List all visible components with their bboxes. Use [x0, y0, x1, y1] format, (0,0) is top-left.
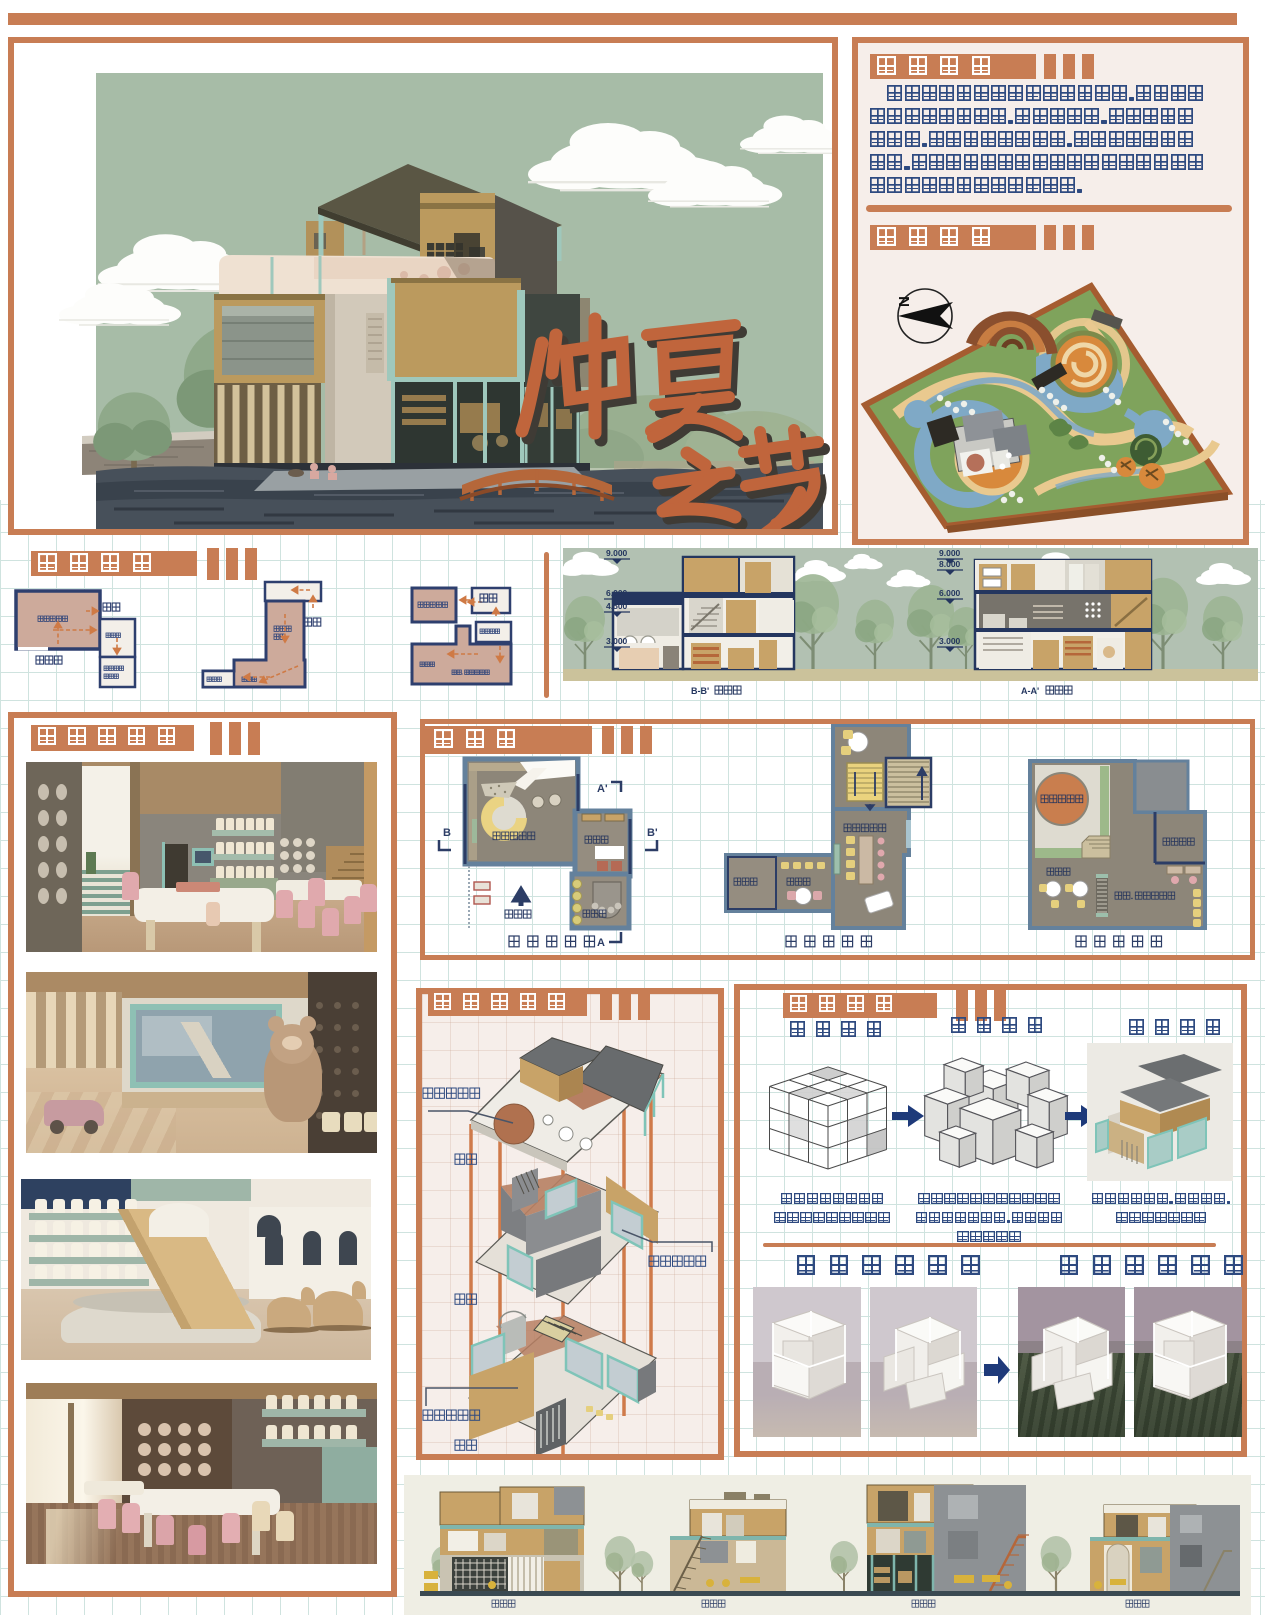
svg-text:6.000: 6.000 — [606, 588, 628, 598]
svg-text:4.500: 4.500 — [606, 601, 628, 611]
svg-text:A-A': A-A' — [1021, 686, 1039, 696]
svg-text:A: A — [597, 937, 605, 949]
svg-text:8.000: 8.000 — [939, 559, 961, 569]
svg-text:B-B': B-B' — [691, 686, 709, 696]
svg-text:B: B — [443, 827, 451, 839]
svg-text:N: N — [896, 296, 913, 307]
svg-text:3.000: 3.000 — [606, 636, 628, 646]
svg-text:3.000: 3.000 — [939, 636, 961, 646]
svg-text:B': B' — [647, 827, 658, 839]
svg-text:9.000: 9.000 — [606, 548, 628, 558]
svg-text:9.000: 9.000 — [939, 548, 961, 558]
svg-text:A': A' — [597, 783, 608, 795]
svg-text:6.000: 6.000 — [939, 588, 961, 598]
